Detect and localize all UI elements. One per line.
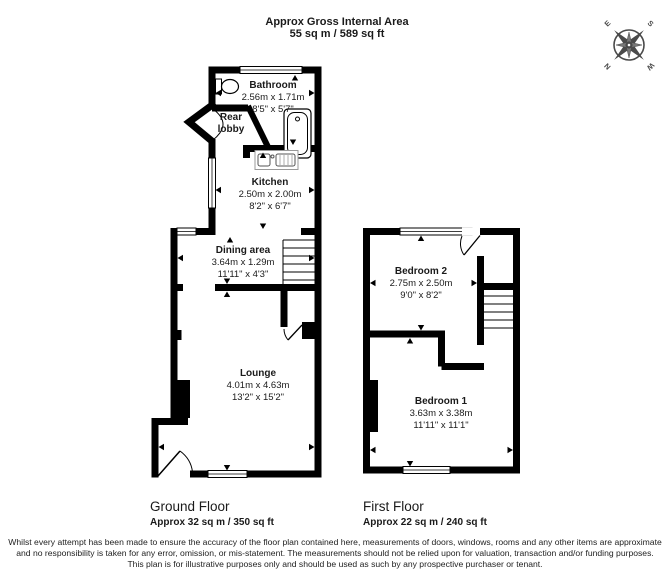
plan-title: Approx Gross Internal Area 55 sq m / 589… [265, 16, 408, 40]
room-label-bathroom: Bathroom 2.56m x 1.71m 8'5" x 5'7" [242, 80, 305, 116]
ground-floor-stairs [283, 240, 315, 284]
room-label-lounge: Lounge 4.01m x 4.63m 13'2" x 15'2" [227, 368, 290, 404]
room-label-kitchen: Kitchen 2.50m x 2.00m 8'2" x 6'7" [239, 177, 302, 213]
floorplan-page: E S W N Approx Gross Internal Area 55 sq… [0, 0, 670, 583]
ground-floor-label: Ground Floor Approx 32 sq m / 350 sq ft [150, 499, 274, 528]
disclaimer-text: Whilst every attempt has been made to en… [0, 537, 670, 569]
room-label-bedroom2: Bedroom 2 2.75m x 2.50m 9'0" x 8'2" [390, 266, 453, 302]
plan-title-area: 55 sq m / 589 sq ft [265, 28, 408, 40]
compass-n: N [602, 61, 612, 71]
first-floor-label: First Floor Approx 22 sq m / 240 sq ft [363, 499, 487, 528]
compass-s: S [646, 19, 656, 29]
first-floor-piers [363, 380, 378, 432]
first-floor-stairs [484, 296, 513, 328]
kitchen-sink-icon [255, 151, 298, 170]
first-floor-doors [460, 236, 480, 256]
plan-title-line1: Approx Gross Internal Area [265, 16, 408, 28]
room-label-bedroom1: Bedroom 1 3.63m x 3.38m 11'11" x 11'1" [410, 396, 473, 432]
compass-w: W [644, 61, 656, 73]
room-label-rear-lobby: Rear lobby [207, 112, 255, 136]
compass-icon: E S W N [602, 19, 656, 73]
compass-e: E [603, 19, 613, 29]
floorplan-graphic: E S W N [0, 0, 670, 583]
room-label-dining: Dining area 3.64m x 1.29m 11'11" x 4'3" [212, 245, 275, 281]
